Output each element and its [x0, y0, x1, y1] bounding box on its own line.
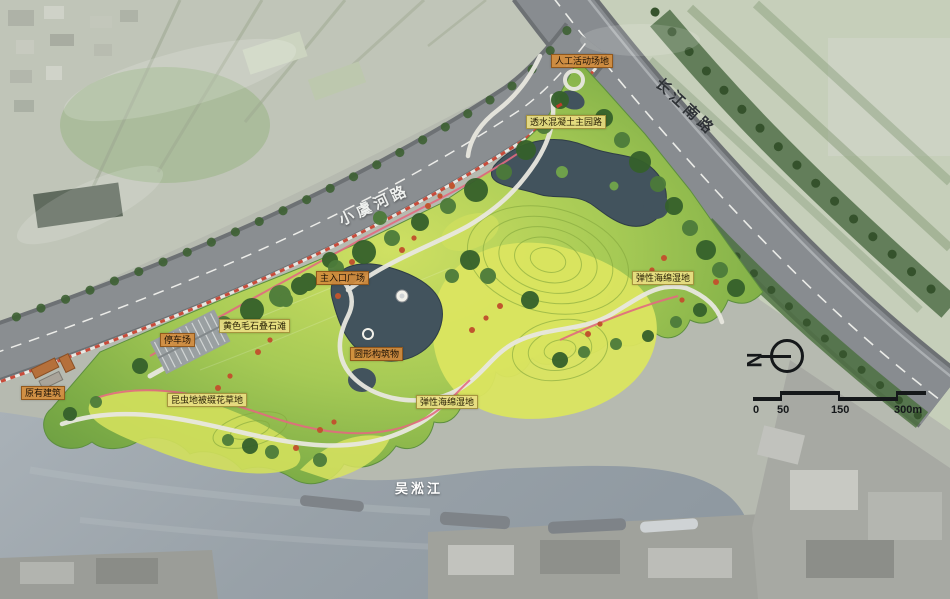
scale-bar: 0 50 150 300m — [753, 390, 929, 422]
label-circular-structure: 圆形构筑物 — [350, 347, 403, 361]
label-existing-building: 原有建筑 — [21, 386, 65, 400]
scale-tick-150: 150 — [831, 404, 849, 416]
label-sponge-wetland-central: 弹性海绵湿地 — [416, 395, 478, 409]
north-arrow: N — [746, 336, 808, 388]
site-plan-artwork — [0, 0, 950, 599]
scale-tick-300: 300m — [894, 404, 922, 416]
scale-tick-50: 50 — [777, 404, 789, 416]
label-insect-groundcover-meadow: 昆虫地被缀花草地 — [167, 393, 247, 407]
scale-tick-0: 0 — [753, 404, 759, 416]
label-artificial-activity-area: 人工活动场地 — [551, 54, 613, 68]
north-arrow-bar — [761, 355, 791, 358]
label-parking-lot: 停车场 — [160, 333, 195, 347]
river-label-wusong: 吴淞江 — [395, 478, 443, 497]
label-sponge-wetland-east: 弹性海绵湿地 — [632, 271, 694, 285]
label-permeable-concrete-main-path: 透水混凝土主园路 — [526, 115, 606, 129]
label-main-entrance-plaza: 主入口广场 — [316, 271, 369, 285]
landscape-master-plan: 人工活动场地 透水混凝土主园路 主入口广场 黄色毛石叠石滩 停车场 原有建筑 昆… — [0, 0, 950, 599]
label-yellow-rubble-stone-beach: 黄色毛石叠石滩 — [219, 319, 290, 333]
scale-bar-steps — [753, 390, 929, 402]
